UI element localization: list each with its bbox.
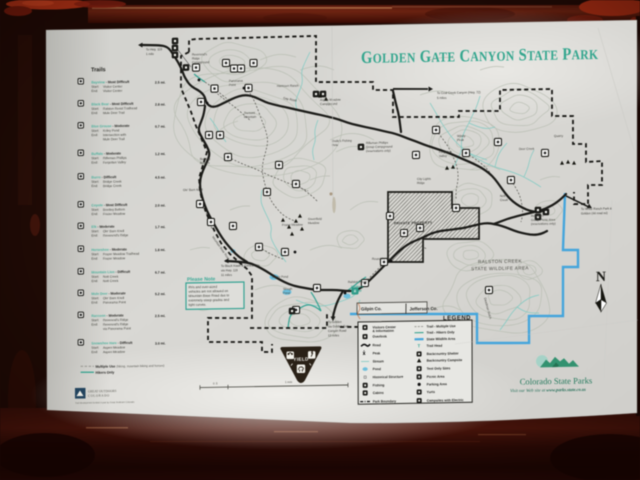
svg-text:5 miles: 5 miles bbox=[437, 96, 447, 100]
svg-text:Bottom: Bottom bbox=[200, 161, 210, 165]
svg-text:5.2 mi.: 5.2 mi. bbox=[155, 292, 166, 296]
svg-text:To Hwy. 119: To Hwy. 119 bbox=[146, 47, 162, 51]
svg-text:Picnic Area: Picnic Area bbox=[427, 375, 445, 379]
svg-text:To Black Hawk & Central City: To Black Hawk & Central City bbox=[221, 263, 260, 268]
svg-text:RALSTON CREEK: RALSTON CREEK bbox=[478, 259, 522, 265]
svg-text:Campground: Campground bbox=[192, 60, 210, 64]
svg-text:(reservations only): (reservations only) bbox=[531, 222, 556, 226]
svg-text:End:: End: bbox=[91, 279, 98, 283]
svg-text:Park Boundary: Park Boundary bbox=[373, 399, 397, 403]
svg-text:Mule Deer Trail: Mule Deer Trail bbox=[103, 137, 125, 141]
svg-text:End:: End: bbox=[91, 322, 98, 326]
svg-text:End:: End: bbox=[91, 160, 98, 164]
svg-text:End:: End: bbox=[91, 111, 98, 115]
svg-text:Pond: Pond bbox=[373, 367, 381, 371]
svg-text:via Hwy. 119: via Hwy. 119 bbox=[221, 268, 238, 272]
svg-text:1.2 mi.: 1.2 mi. bbox=[155, 152, 166, 156]
svg-text:Bridge Creek: Bridge Creek bbox=[103, 184, 122, 188]
svg-text:LEGEND: LEGEND bbox=[443, 315, 471, 322]
svg-text:via Panorama Point: via Panorama Point bbox=[103, 326, 131, 331]
svg-text:Peak: Peak bbox=[457, 138, 464, 142]
svg-text:Point: Point bbox=[229, 83, 236, 87]
svg-text:Frazer Meadow: Frazer Meadow bbox=[282, 223, 304, 227]
svg-text:1.8 mi.: 1.8 mi. bbox=[155, 248, 166, 252]
svg-text:Colorado State Parks: Colorado State Parks bbox=[520, 375, 593, 386]
svg-text:End:: End: bbox=[91, 133, 98, 137]
svg-text:6.7 mi.: 6.7 mi. bbox=[155, 270, 166, 274]
svg-text:Backcountry Shelter: Backcountry Shelter bbox=[427, 351, 460, 356]
svg-text:N: N bbox=[596, 269, 606, 285]
svg-text:Tent Only Sites: Tent Only Sites bbox=[427, 366, 451, 370]
svg-text:4.5 mi.: 4.5 mi. bbox=[155, 175, 166, 179]
svg-text:End:: End: bbox=[91, 350, 98, 354]
svg-text:End:: End: bbox=[91, 300, 98, 304]
svg-text:Visitor Center: Visitor Center bbox=[103, 89, 123, 93]
svg-text:Trail Head: Trail Head bbox=[427, 344, 443, 348]
svg-text:Peak: Peak bbox=[373, 351, 381, 355]
svg-text:1.7 mi.: 1.7 mi. bbox=[155, 225, 166, 229]
svg-text:0.7 mi.: 0.7 mi. bbox=[155, 125, 166, 129]
svg-text:Harmsen Ranch: Harmsen Ranch bbox=[277, 84, 299, 88]
svg-text:Road: Road bbox=[373, 343, 381, 347]
svg-text:End:: End: bbox=[91, 233, 98, 237]
svg-text:Cabins: Cabins bbox=[373, 391, 384, 395]
svg-text:YIELD: YIELD bbox=[293, 357, 309, 362]
svg-text:11 miles: 11 miles bbox=[221, 273, 232, 277]
svg-text:Deer Creek: Deer Creek bbox=[519, 147, 535, 151]
svg-text:COLORADO: COLORADO bbox=[88, 393, 110, 397]
svg-text:Center: Center bbox=[351, 289, 362, 293]
svg-text:Historical Structure: Historical Structure bbox=[373, 375, 404, 380]
svg-text:Ralston Roost: Ralston Roost bbox=[348, 280, 367, 284]
svg-text:1 mile: 1 mile bbox=[146, 52, 154, 56]
svg-text:Mountain: Mountain bbox=[244, 115, 257, 119]
svg-text:Valley: Valley bbox=[439, 154, 447, 158]
svg-text:1 mile: 1 mile bbox=[285, 380, 293, 384]
svg-text:Trails: Trails bbox=[91, 67, 106, 73]
svg-text:0 .5: 0 .5 bbox=[213, 381, 218, 385]
svg-text:Fishing: Fishing bbox=[373, 383, 385, 387]
svg-text:3.0 mi.: 3.0 mi. bbox=[155, 341, 166, 345]
svg-text:Pond: Pond bbox=[283, 291, 290, 295]
svg-text:Quarry: Quarry bbox=[554, 134, 564, 138]
svg-text:Yurts: Yurts bbox=[427, 390, 435, 394]
svg-text:Frazer Meadow: Frazer Meadow bbox=[103, 212, 126, 216]
svg-text:Campground: Campground bbox=[320, 102, 338, 106]
svg-text:2.8 mi.: 2.8 mi. bbox=[155, 102, 166, 106]
svg-text:Forgotten Valley: Forgotten Valley bbox=[103, 160, 126, 164]
svg-text:End:: End: bbox=[91, 212, 98, 216]
svg-text:End:: End: bbox=[91, 89, 98, 93]
svg-text:Meadow: Meadow bbox=[308, 221, 320, 225]
svg-text:2.5 mi.: 2.5 mi. bbox=[155, 80, 166, 84]
svg-text:Trail - Hikers Only: Trail - Hikers Only bbox=[427, 330, 455, 335]
svg-text:Jefferson Co.: Jefferson Co. bbox=[410, 306, 438, 312]
svg-text:End:: End: bbox=[91, 184, 98, 188]
svg-text:To Coal Creek Canyon (Hwy. 72): To Coal Creek Canyon (Hwy. 72) bbox=[437, 90, 481, 95]
svg-text:Mule Deer Trail: Mule Deer Trail bbox=[103, 111, 125, 115]
svg-text:Creek: Creek bbox=[500, 198, 508, 202]
svg-text:STATE WILDLIFE AREA: STATE WILDLIFE AREA bbox=[471, 265, 529, 271]
svg-text:Panorama Point: Panorama Point bbox=[103, 300, 126, 304]
svg-text:Aviary Pond: Aviary Pond bbox=[272, 275, 288, 279]
svg-text:Gilpin Co.: Gilpin Co. bbox=[361, 306, 382, 311]
svg-text:PRIVATE PROPERTY: PRIVATE PROPERTY bbox=[394, 221, 433, 226]
svg-text:State Wildlife Area: State Wildlife Area bbox=[427, 337, 456, 342]
svg-text:Overlook: Overlook bbox=[373, 334, 387, 338]
svg-text:Reverend's Ridge: Reverend's Ridge bbox=[103, 233, 129, 237]
svg-text:Canyon Road: Canyon Road bbox=[328, 329, 347, 333]
svg-text:Ole' Barn Knoll: Ole' Barn Knoll bbox=[183, 188, 203, 192]
svg-text:Parking Area: Parking Area bbox=[427, 382, 447, 386]
svg-text:Round the Bend: Round the Bend bbox=[372, 257, 394, 261]
svg-text:Trail - Multiple Use: Trail - Multiple Use bbox=[426, 324, 455, 329]
svg-text:Ridge: Ridge bbox=[417, 181, 425, 185]
svg-text:2.0 mi.: 2.0 mi. bbox=[155, 203, 166, 207]
svg-text:T: T bbox=[418, 343, 421, 348]
svg-text:Stream: Stream bbox=[373, 359, 384, 363]
svg-text:Hikers Only: Hikers Only bbox=[96, 370, 115, 374]
svg-text:Backcountry Campsite: Backcountry Campsite bbox=[427, 358, 463, 363]
svg-text:End:: End: bbox=[91, 257, 98, 261]
svg-text:(reservations only): (reservations only) bbox=[366, 149, 391, 153]
svg-text:& Information: & Information bbox=[373, 329, 394, 333]
svg-text:tight curves.: tight curves. bbox=[189, 303, 207, 307]
svg-text:Aspen Meadow: Aspen Meadow bbox=[103, 350, 126, 354]
svg-text:Nott Creek: Nott Creek bbox=[103, 279, 119, 283]
svg-text:2.5 mi.: 2.5 mi. bbox=[155, 314, 166, 318]
svg-text:Frazer Meadow: Frazer Meadow bbox=[103, 256, 126, 260]
svg-text:13 miles: 13 miles bbox=[328, 333, 340, 337]
svg-text:Campsites with Electric: Campsites with Electric bbox=[427, 398, 464, 403]
svg-text:Golden (44 road mi): Golden (44 road mi) bbox=[581, 211, 608, 215]
